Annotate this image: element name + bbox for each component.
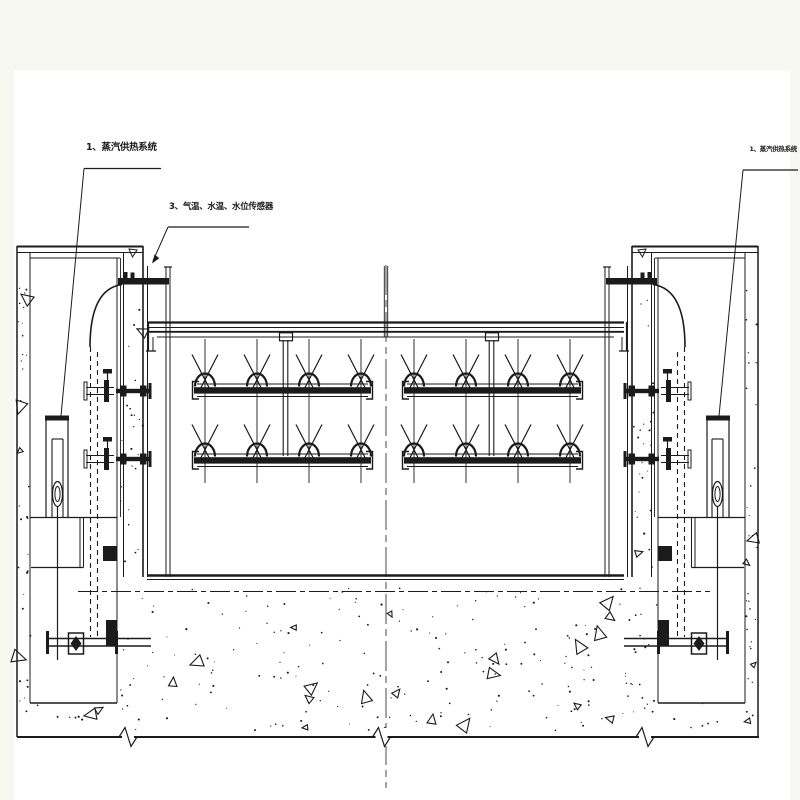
steam-spray-pipe-lower-left bbox=[193, 452, 373, 470]
pipe-fitting bbox=[103, 546, 117, 561]
cad-canvas: 1、蒸汽供热系统 3、气温、水温、水位传感器 1、蒸汽供热系统 bbox=[0, 0, 800, 800]
wall-top-armour-plate bbox=[118, 278, 169, 285]
technical-drawing-gate-steam-system: 1、蒸汽供热系统 3、气温、水温、水位传感器 1、蒸汽供热系统 bbox=[0, 0, 800, 800]
label-steam-system-right: 1、蒸汽供热系统 bbox=[749, 144, 797, 153]
steam-spray-pipe-lower-right bbox=[403, 452, 583, 470]
steam-spray-pipe-upper-right bbox=[403, 382, 583, 400]
label-steam-system-left: 1、蒸汽供热系统 bbox=[86, 141, 158, 153]
label-sensors: 3、气温、水温、水位传感器 bbox=[169, 201, 274, 212]
steam-spray-pipe-upper-left bbox=[193, 382, 373, 400]
drawing-sheet bbox=[14, 70, 790, 800]
